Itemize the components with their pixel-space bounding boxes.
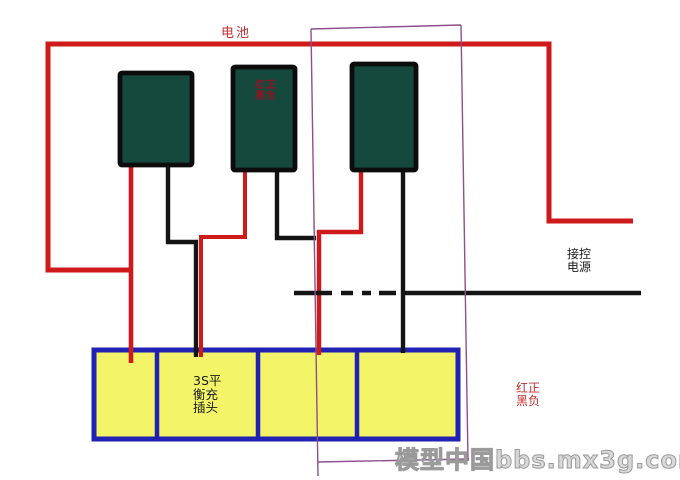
control-power-label: 接控 电源	[567, 248, 591, 274]
battery2-negative-wire	[277, 167, 316, 238]
site-watermark: 模型中国bbs.mx3g.com	[395, 440, 680, 475]
battery-3	[352, 64, 416, 170]
wire-color-legend-label: 红正 黑负	[516, 382, 540, 407]
balance-plug-label: 3S平 衡充 插头	[193, 374, 221, 415]
diagram-canvas	[0, 0, 680, 480]
battery2-positive-wire	[201, 167, 245, 357]
balance-plug-body	[94, 350, 458, 439]
battery2-marking-label: 红正 黑负	[255, 80, 277, 102]
battery1-negative-wire	[168, 162, 196, 357]
battery3-positive-wire	[319, 167, 361, 355]
battery-group-label: 电池	[221, 22, 251, 41]
battery-1	[120, 73, 192, 165]
wiring-diagram: 电池 红正 黑负 接控 电源 3S平 衡充 插头 红正 黑负 模型中国bbs.m…	[0, 0, 680, 480]
